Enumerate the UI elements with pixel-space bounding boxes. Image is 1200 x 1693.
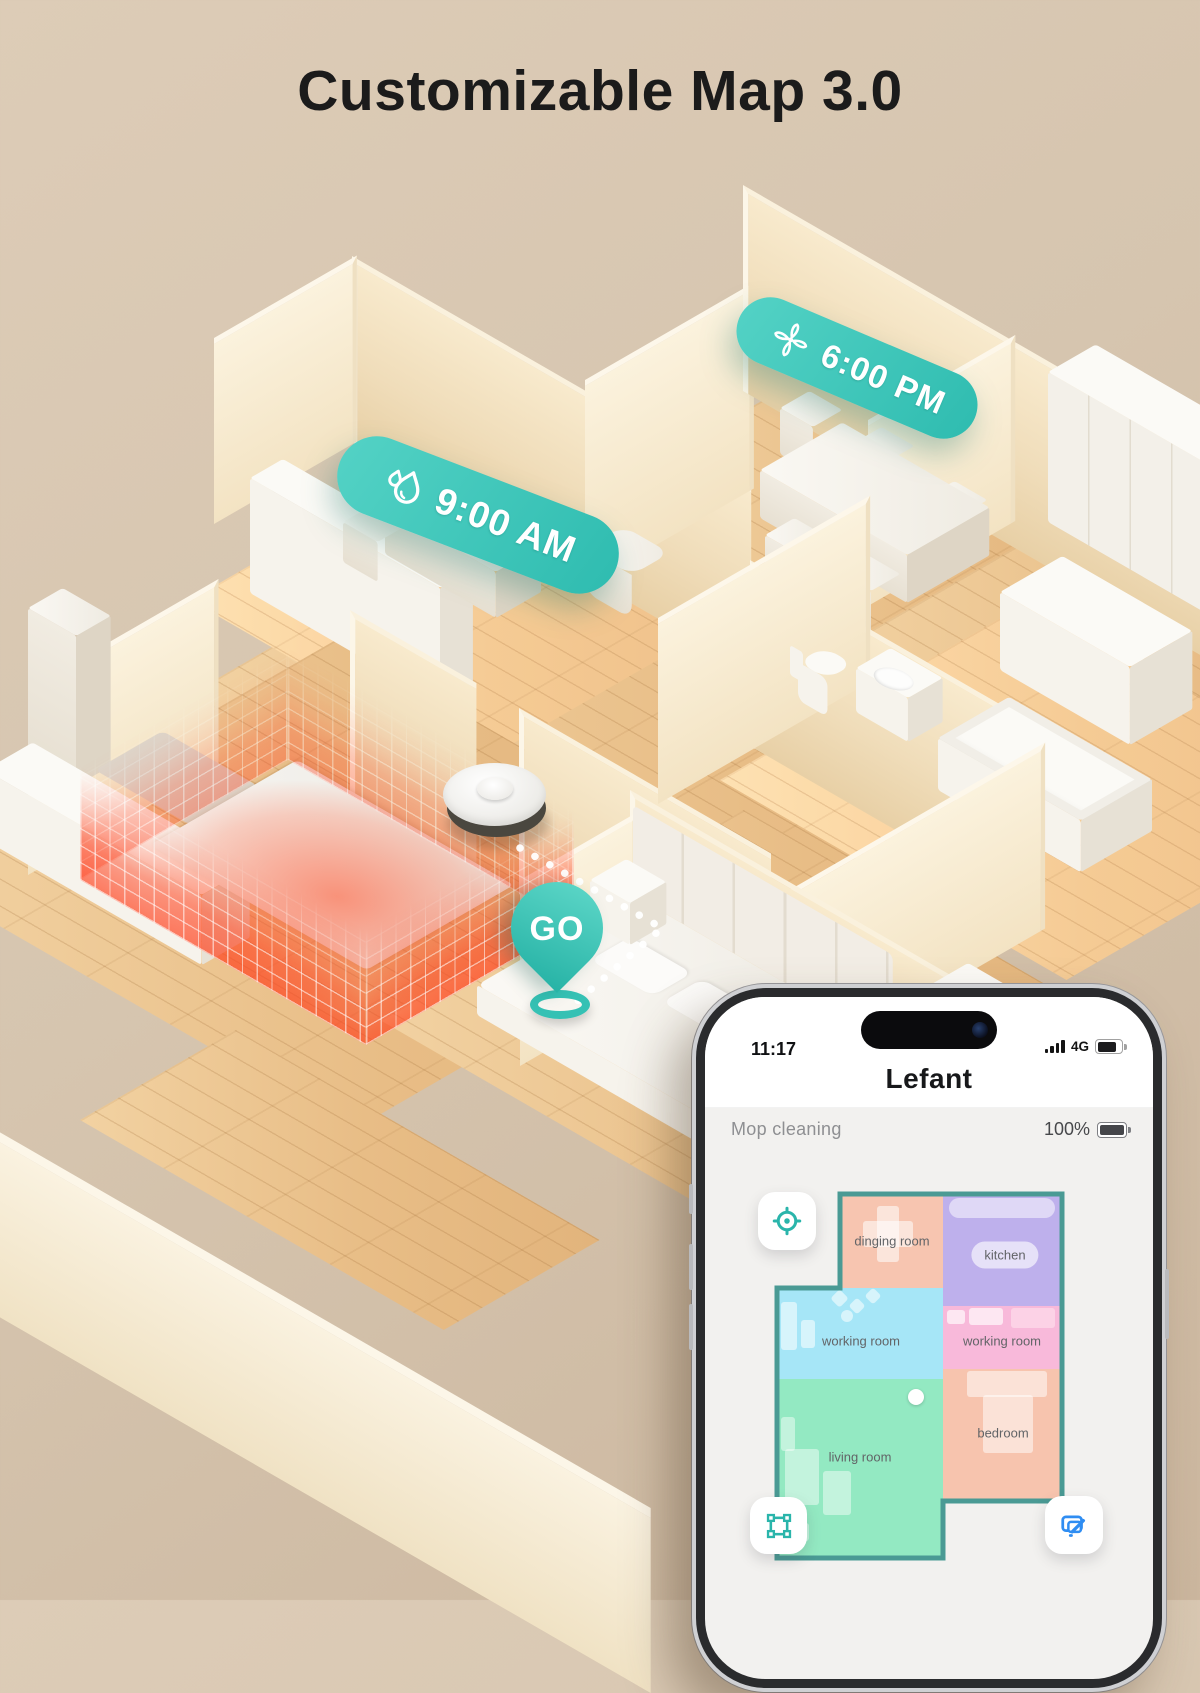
robot-battery-icon	[1097, 1122, 1127, 1138]
cleaning-map: dinging room kitchen working room workin…	[777, 1194, 1062, 1558]
battery-icon	[1095, 1039, 1123, 1054]
app-title: Lefant	[705, 1063, 1153, 1095]
zone-frame-icon	[765, 1512, 793, 1540]
status-icons: 4G	[1045, 1039, 1123, 1054]
room-label: working room	[963, 1334, 1041, 1349]
map-edit-icon	[1059, 1510, 1089, 1540]
dynamic-island	[861, 1011, 997, 1049]
signal-bars-icon	[1045, 1040, 1065, 1053]
phone-screen: 11:17 4G Lefant Mop cleaning 100%	[705, 997, 1153, 1679]
camera-icon	[972, 1022, 988, 1038]
room-label: bedroom	[977, 1426, 1028, 1441]
network-label: 4G	[1071, 1039, 1089, 1054]
map-edit-button[interactable]	[1045, 1496, 1103, 1554]
go-pin: GO	[505, 880, 609, 1020]
phone-power-button	[1165, 1269, 1169, 1339]
phone-volume-up	[689, 1244, 693, 1290]
phone-mockup: 11:17 4G Lefant Mop cleaning 100%	[692, 984, 1166, 1692]
room-label: dinging room	[854, 1234, 929, 1249]
status-time: 11:17	[751, 1039, 796, 1060]
battery-percentage: 100%	[1044, 1119, 1090, 1140]
room-label: living room	[829, 1450, 892, 1465]
page-title: Customizable Map 3.0	[0, 58, 1200, 124]
marketing-image: { "title": "Customizable Map 3.0", "badg…	[0, 0, 1200, 1600]
phone-volume-down	[689, 1304, 693, 1350]
phone-side-button	[689, 1184, 693, 1214]
room-label: working room	[822, 1334, 900, 1349]
room-label: kitchen	[971, 1242, 1038, 1269]
cleaning-mode-label: Mop cleaning	[731, 1119, 842, 1140]
go-pin-label: GO	[505, 910, 609, 949]
water-drop-icon	[373, 457, 432, 516]
fan-icon	[762, 311, 820, 369]
pin-ring	[530, 990, 590, 1019]
zone-button[interactable]	[750, 1497, 807, 1554]
